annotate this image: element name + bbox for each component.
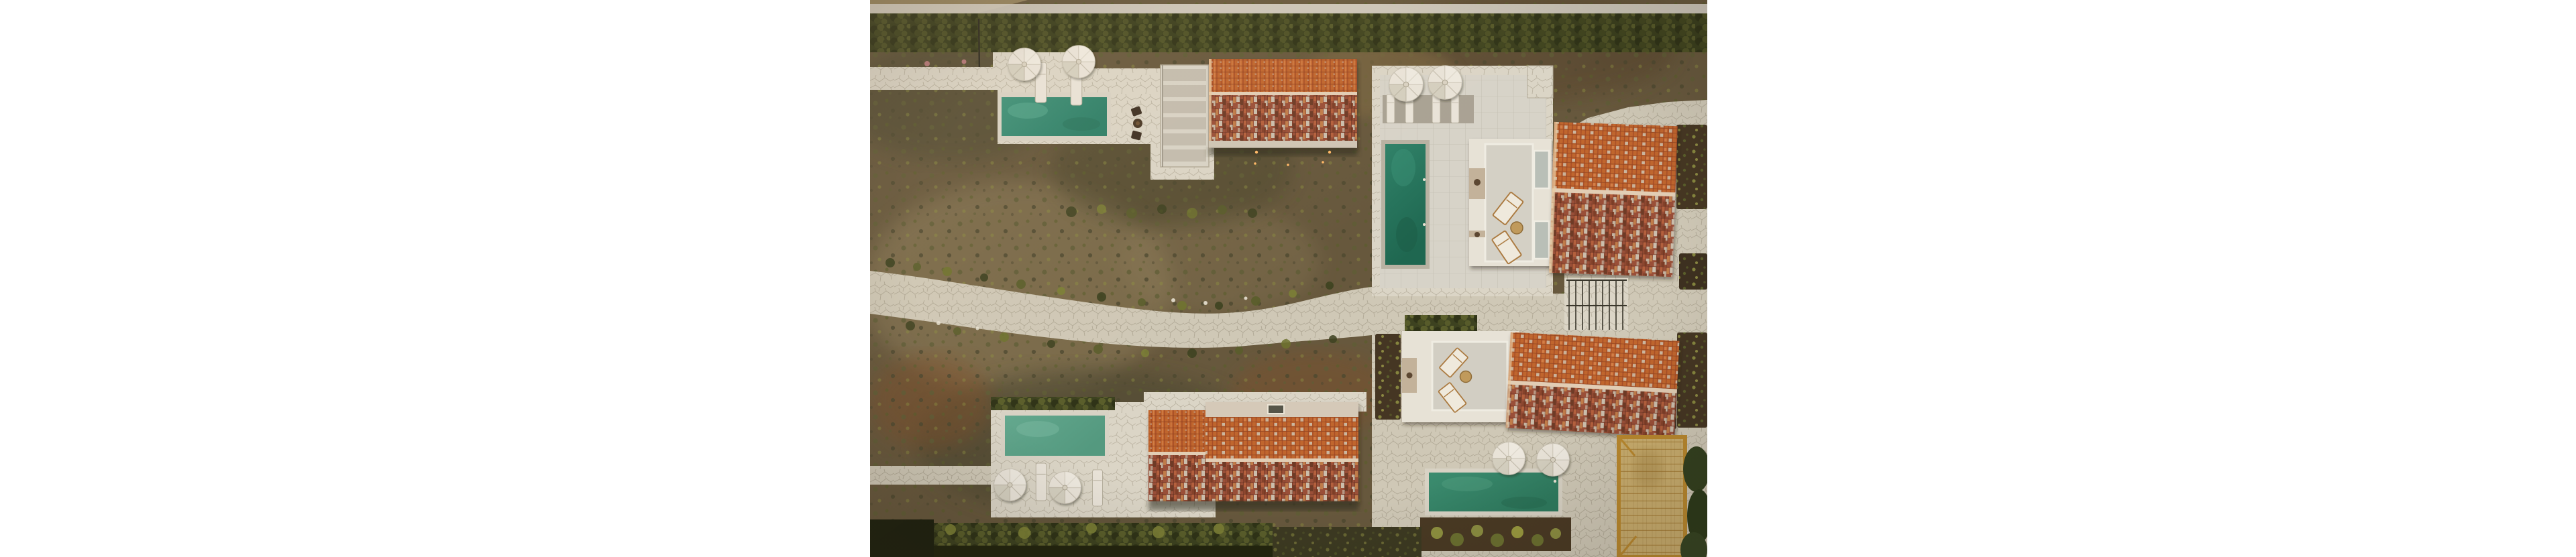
aerial-photo-svg xyxy=(870,0,1707,557)
aerial-photo xyxy=(870,0,1707,557)
page-canvas xyxy=(0,0,2576,557)
vignette-overlay xyxy=(870,0,1707,557)
